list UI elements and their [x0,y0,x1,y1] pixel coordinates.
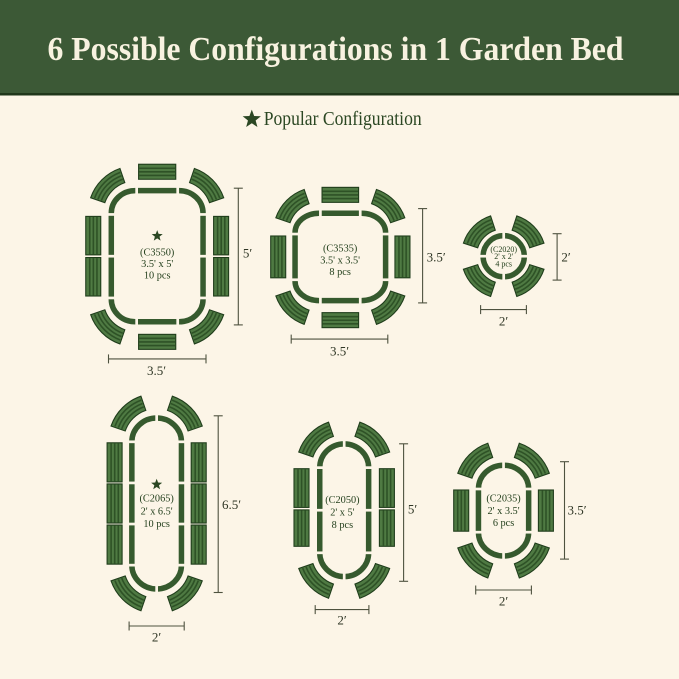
svg-text:10 pcs: 10 pcs [143,519,170,530]
svg-text:3.5′: 3.5′ [427,250,446,265]
svg-text:3.5' x 3.5': 3.5' x 3.5' [320,256,360,267]
svg-text:8 pcs: 8 pcs [332,520,353,531]
svg-text:2′: 2′ [337,613,347,628]
svg-text:4 pcs: 4 pcs [495,259,512,268]
svg-text:(C2050): (C2050) [325,495,359,506]
svg-text:6 pcs: 6 pcs [493,518,514,529]
svg-text:Popular Configuration: Popular Configuration [264,108,422,130]
svg-text:2′: 2′ [499,594,509,609]
svg-text:3.5′: 3.5′ [147,363,166,378]
svg-text:(C3550): (C3550) [140,247,174,258]
svg-text:(C3535): (C3535) [323,244,357,255]
svg-text:3.5′: 3.5′ [567,502,586,517]
svg-text:5′: 5′ [243,246,253,261]
svg-text:(C2035): (C2035) [486,494,520,505]
svg-text:2′: 2′ [152,630,162,645]
svg-text:10 pcs: 10 pcs [144,270,171,281]
svg-text:2′: 2′ [499,314,509,329]
svg-text:3.5' x 5': 3.5' x 5' [141,259,173,270]
svg-text:3.5′: 3.5′ [330,343,349,358]
svg-text:2′: 2′ [561,250,571,265]
svg-text:8 pcs: 8 pcs [329,267,350,278]
svg-text:2' x 6.5': 2' x 6.5' [141,506,173,517]
svg-text:(C2065): (C2065) [139,494,173,505]
svg-text:2' x 3.5': 2' x 3.5' [488,506,520,517]
svg-text:2' x 5': 2' x 5' [330,508,354,519]
svg-text:6.5′: 6.5′ [222,497,241,512]
svg-text:6 Possible Configurations in 1: 6 Possible Configurations in 1 Garden Be… [48,31,624,68]
svg-text:5′: 5′ [408,502,418,517]
